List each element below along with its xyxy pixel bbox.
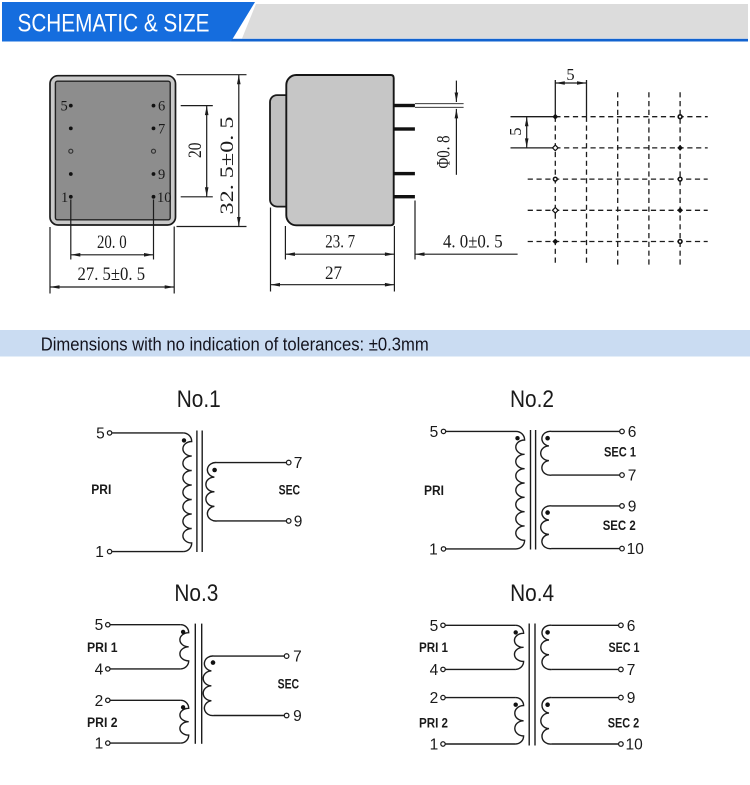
svg-text:1: 1 (95, 544, 104, 561)
svg-text:PRI: PRI (91, 482, 111, 497)
svg-text:5: 5 (506, 127, 525, 135)
svg-text:1: 1 (429, 541, 438, 558)
svg-text:Φ0. 8: Φ0. 8 (435, 136, 455, 169)
svg-text:SEC 1: SEC 1 (604, 445, 636, 460)
svg-text:SEC: SEC (278, 677, 300, 692)
svg-text:1: 1 (430, 737, 439, 754)
svg-text:7: 7 (293, 649, 302, 666)
svg-text:7: 7 (294, 455, 303, 472)
svg-text:5: 5 (61, 99, 68, 115)
svg-text:10: 10 (627, 541, 645, 558)
svg-text:4. 0±0. 5: 4. 0±0. 5 (443, 232, 503, 252)
svg-text:20. 0: 20. 0 (97, 233, 127, 253)
svg-text:6: 6 (628, 424, 637, 441)
svg-text:23. 7: 23. 7 (325, 232, 355, 252)
svg-text:7: 7 (158, 121, 165, 137)
svg-text:27. 5±0. 5: 27. 5±0. 5 (78, 265, 146, 285)
svg-text:9: 9 (294, 514, 303, 531)
svg-text:PRI 2: PRI 2 (87, 715, 118, 730)
svg-text:No.3: No.3 (174, 580, 218, 607)
svg-text:5: 5 (430, 618, 439, 635)
svg-text:7: 7 (628, 468, 637, 485)
svg-text:10: 10 (626, 737, 644, 754)
svg-text:6: 6 (627, 618, 636, 635)
svg-text:1: 1 (95, 736, 104, 753)
svg-text:No.2: No.2 (510, 386, 554, 413)
svg-text:No.1: No.1 (177, 386, 221, 413)
svg-text:PRI 1: PRI 1 (87, 640, 118, 655)
svg-text:5: 5 (430, 424, 439, 441)
svg-text:20: 20 (186, 142, 206, 158)
svg-text:SEC 1: SEC 1 (609, 640, 640, 655)
svg-text:PRI 1: PRI 1 (419, 640, 448, 655)
svg-text:4: 4 (95, 661, 104, 678)
svg-text:5: 5 (566, 65, 574, 84)
svg-text:2: 2 (430, 690, 439, 707)
svg-text:SEC 2: SEC 2 (603, 518, 636, 533)
svg-text:7: 7 (627, 662, 636, 679)
svg-text:5: 5 (96, 425, 105, 442)
svg-text:PRI 2: PRI 2 (419, 715, 448, 730)
svg-text:SEC: SEC (279, 483, 301, 498)
svg-text:5: 5 (95, 617, 104, 634)
svg-text:No.4: No.4 (510, 580, 554, 607)
svg-text:6: 6 (158, 99, 165, 115)
svg-text:27: 27 (325, 264, 342, 284)
svg-text:PRI: PRI (424, 483, 444, 498)
svg-text:SCHEMATIC & SIZE: SCHEMATIC & SIZE (18, 10, 210, 38)
svg-text:32. 5±0. 5: 32. 5±0. 5 (218, 117, 238, 215)
svg-text:2: 2 (95, 693, 104, 710)
svg-text:9: 9 (627, 690, 636, 707)
svg-text:9: 9 (293, 708, 302, 725)
svg-text:9: 9 (628, 498, 637, 515)
svg-text:4: 4 (430, 662, 439, 679)
svg-text:10: 10 (157, 190, 172, 206)
svg-text:1: 1 (61, 190, 68, 206)
svg-text:SEC 2: SEC 2 (608, 715, 640, 730)
svg-text:Dimensions with no indication: Dimensions with no indication of toleran… (41, 334, 429, 354)
svg-text:9: 9 (158, 167, 165, 183)
